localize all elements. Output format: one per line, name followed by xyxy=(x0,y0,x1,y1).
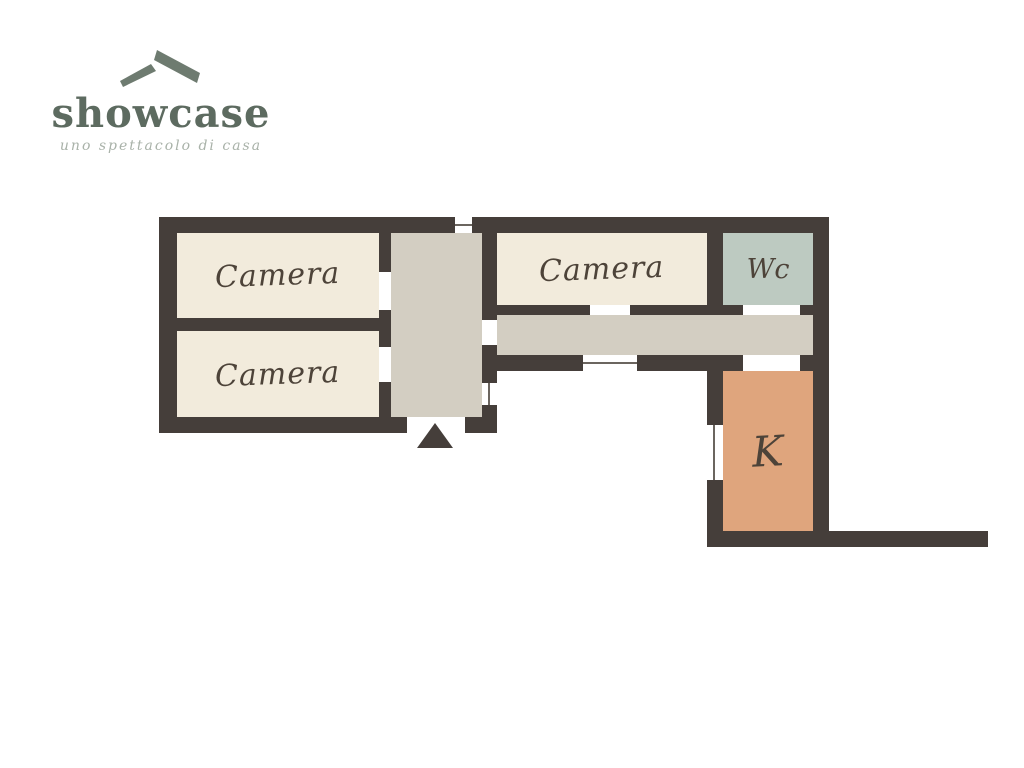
corridor xyxy=(497,315,813,355)
room-kitchen: K xyxy=(723,371,813,531)
wall-hallway-east-a xyxy=(482,217,497,320)
wall-camera-wc-divider xyxy=(707,217,723,315)
floor-plan: Camera Camera Camera Wc K xyxy=(159,217,829,547)
window-top-icon xyxy=(455,224,472,226)
window-corridor-south-icon xyxy=(583,362,637,364)
room-label: Camera xyxy=(539,249,665,288)
room-label: K xyxy=(751,426,785,477)
entrance-arrow-icon xyxy=(417,423,453,448)
brand-name: showcase xyxy=(46,92,276,136)
room-camera-right: Camera xyxy=(497,233,707,305)
room-label: Camera xyxy=(215,256,341,295)
wall-corridor-south-a xyxy=(497,355,583,371)
room-label: Camera xyxy=(215,354,341,393)
window-kitchen-icon xyxy=(713,425,715,480)
hallway xyxy=(391,233,482,417)
wall-top-right xyxy=(472,217,829,233)
wall-kitchen-west-a xyxy=(707,355,723,425)
room-camera-top-left: Camera xyxy=(177,233,379,318)
wall-cameras-east-b xyxy=(379,310,391,347)
wall-corridor-north-a xyxy=(497,305,590,315)
wall-corridor-north-c xyxy=(800,305,813,315)
wall-corridor-south-b xyxy=(637,355,743,371)
window-hallway-icon xyxy=(488,383,490,405)
room-wc: Wc xyxy=(723,233,813,305)
wall-right xyxy=(813,217,829,547)
page: showcase uno spettacolo di casa Camera C… xyxy=(0,0,1024,768)
wall-hallway-east-c xyxy=(482,405,497,433)
wall-cameras-east-a xyxy=(379,217,391,272)
wall-hallway-east-b xyxy=(482,345,497,383)
brand-logo: showcase uno spettacolo di casa xyxy=(46,48,276,154)
wall-corridor-south-c xyxy=(800,355,813,371)
wall-camera-divider xyxy=(159,318,391,331)
wall-corridor-north-b xyxy=(630,305,743,315)
room-label: Wc xyxy=(747,254,790,285)
wall-top-left xyxy=(159,217,455,233)
wall-kitchen-bottom xyxy=(707,531,988,547)
wall-bottom-left xyxy=(159,417,407,433)
room-camera-bottom-left: Camera xyxy=(177,331,379,417)
wall-cameras-east-c xyxy=(379,382,391,433)
roof-icon xyxy=(115,48,207,94)
brand-tagline: uno spettacolo di casa xyxy=(46,138,276,154)
